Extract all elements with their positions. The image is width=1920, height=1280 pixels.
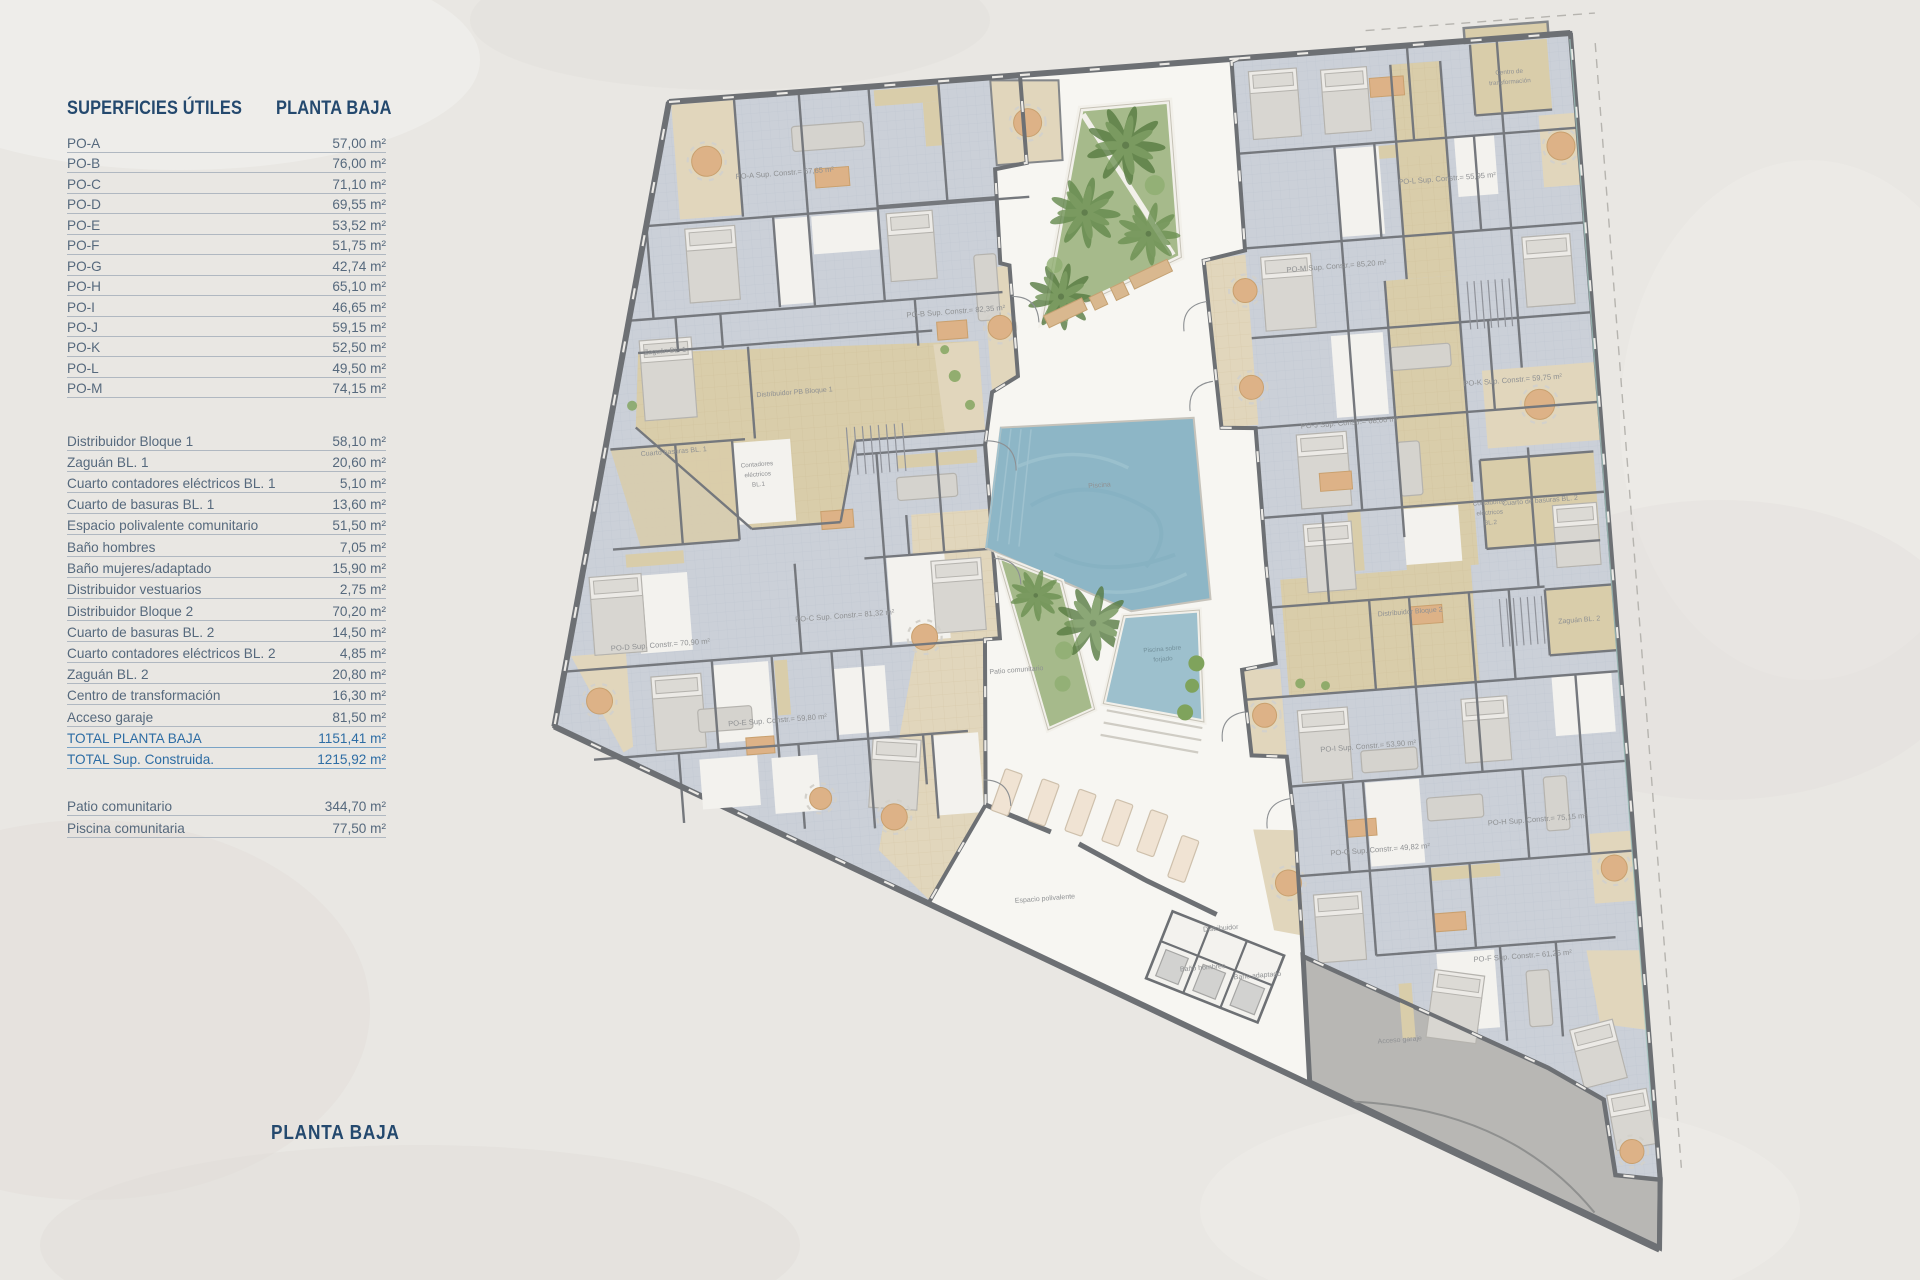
svg-text:BL.2: BL.2: [1484, 519, 1498, 527]
svg-text:BL.1: BL.1: [752, 481, 766, 489]
